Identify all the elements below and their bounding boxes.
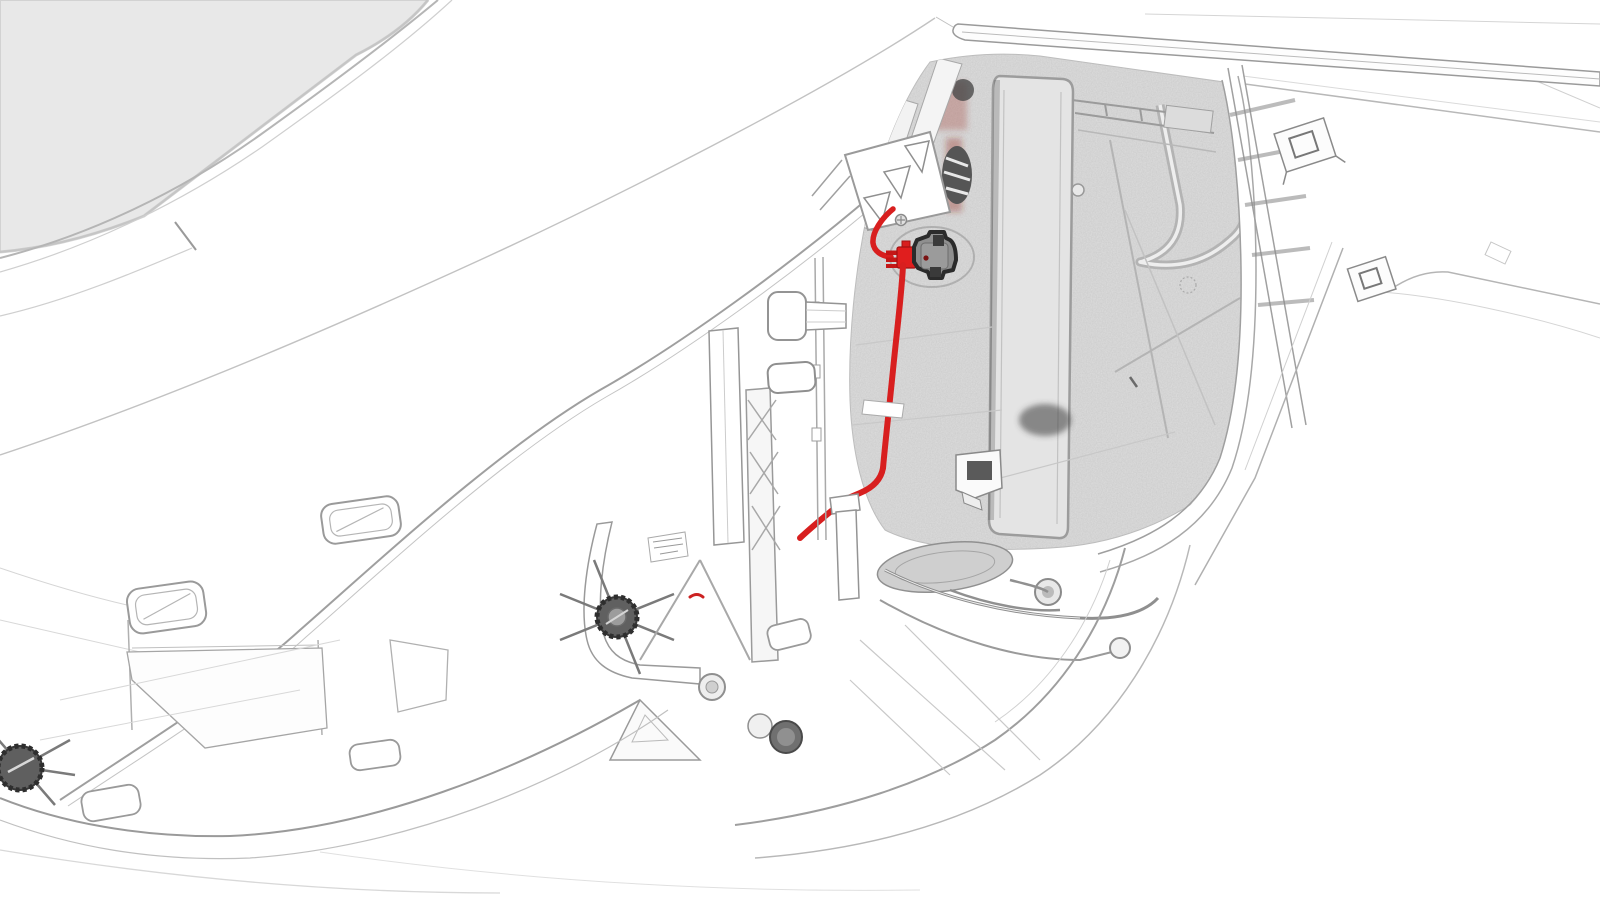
cable-clip <box>812 428 821 441</box>
underbody-panels <box>0 620 920 893</box>
post-body <box>836 510 859 600</box>
bracket-plate <box>390 640 448 712</box>
bumper-faint-line <box>0 850 500 893</box>
fender-top-edge <box>1245 84 1600 132</box>
latch-tab <box>930 267 941 277</box>
cable-fragment <box>690 595 703 598</box>
latch-pin <box>923 255 928 260</box>
illustration-stage <box>0 0 1600 900</box>
star-fastener <box>0 730 75 805</box>
floor-pan-lines <box>850 625 1040 775</box>
door-hinge-brackets <box>1267 116 1396 302</box>
bumper-faint-line <box>320 852 920 890</box>
clevis-beam <box>806 302 846 330</box>
windshield-glass <box>0 0 428 252</box>
latch-tab <box>933 235 944 246</box>
hinge-bracket <box>1347 257 1396 302</box>
rubber-bumper <box>770 721 802 753</box>
suspension-drum <box>875 535 1016 599</box>
pillar-post <box>709 328 744 545</box>
screw-head <box>1072 184 1084 196</box>
service-diagram <box>0 0 1600 900</box>
mount-hole <box>748 714 772 738</box>
latch-bracket-triangles <box>812 132 950 230</box>
shadow-blob <box>1019 404 1071 436</box>
latch-screw <box>896 215 907 226</box>
wiper-pivot-tick <box>175 222 196 250</box>
door-pillar <box>1195 65 1600 585</box>
glass-pane <box>0 0 428 252</box>
pillar-column <box>746 388 778 662</box>
splash-shield <box>127 648 327 748</box>
clevis <box>768 292 806 340</box>
trim-slot <box>767 361 816 393</box>
door-aperture-line <box>1390 272 1600 304</box>
wheel-arch-liner <box>735 545 1190 858</box>
part-label-tag <box>648 532 688 562</box>
hinge-bracket <box>1267 116 1346 185</box>
